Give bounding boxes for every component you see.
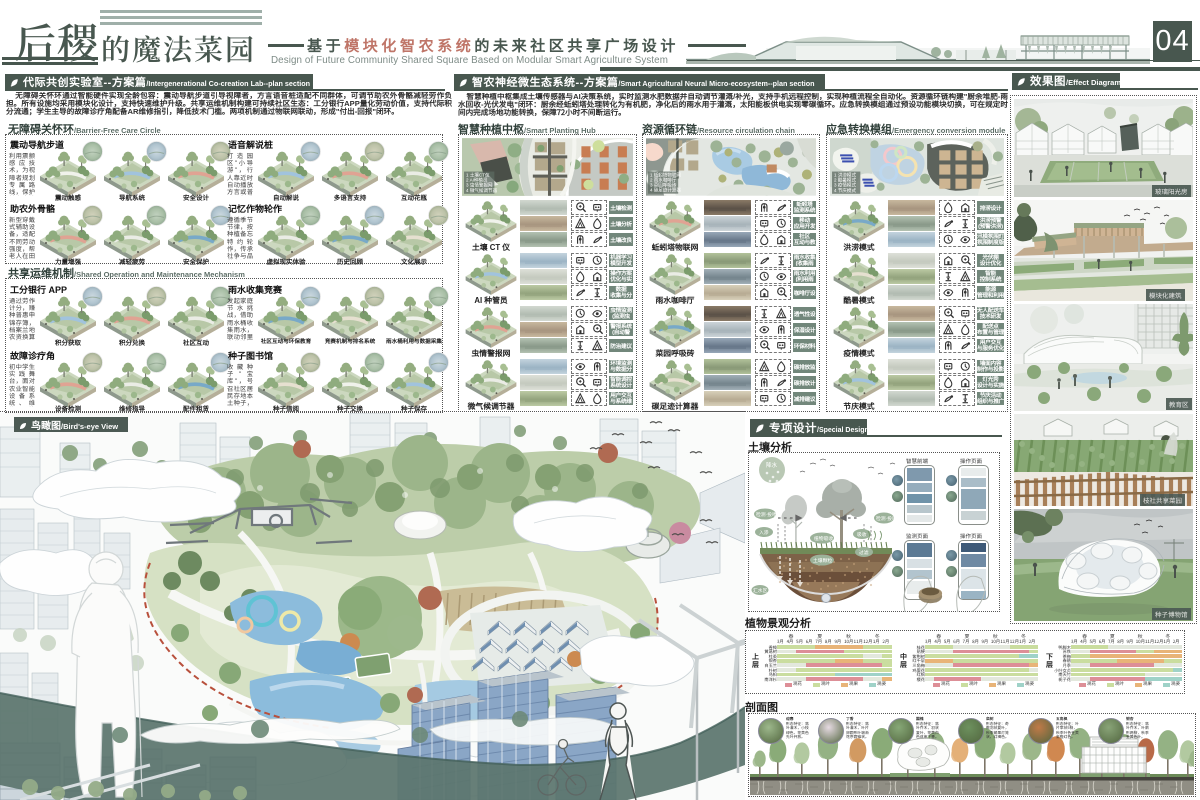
svg-text:4 碳足迹计算器: 4 碳足迹计算器 <box>650 187 681 194</box>
svg-text:植物吸收: 植物吸收 <box>814 535 833 542</box>
svg-text:汇水区: 汇水区 <box>753 587 768 594</box>
svg-text:检测·投喂: 检测·投喂 <box>876 515 897 522</box>
svg-text:吸收: 吸收 <box>857 531 867 538</box>
svg-text:4 微气候调节器: 4 微气候调节器 <box>466 187 498 194</box>
svg-text:4 节庆模式: 4 节庆模式 <box>834 187 856 194</box>
svg-text:检测·投喂: 检测·投喂 <box>756 511 777 518</box>
svg-text:降水: 降水 <box>766 461 778 469</box>
svg-text:过滤: 过滤 <box>859 549 869 556</box>
svg-text:土壤颗粒: 土壤颗粒 <box>813 557 832 564</box>
svg-text:入渗: 入渗 <box>759 529 769 536</box>
